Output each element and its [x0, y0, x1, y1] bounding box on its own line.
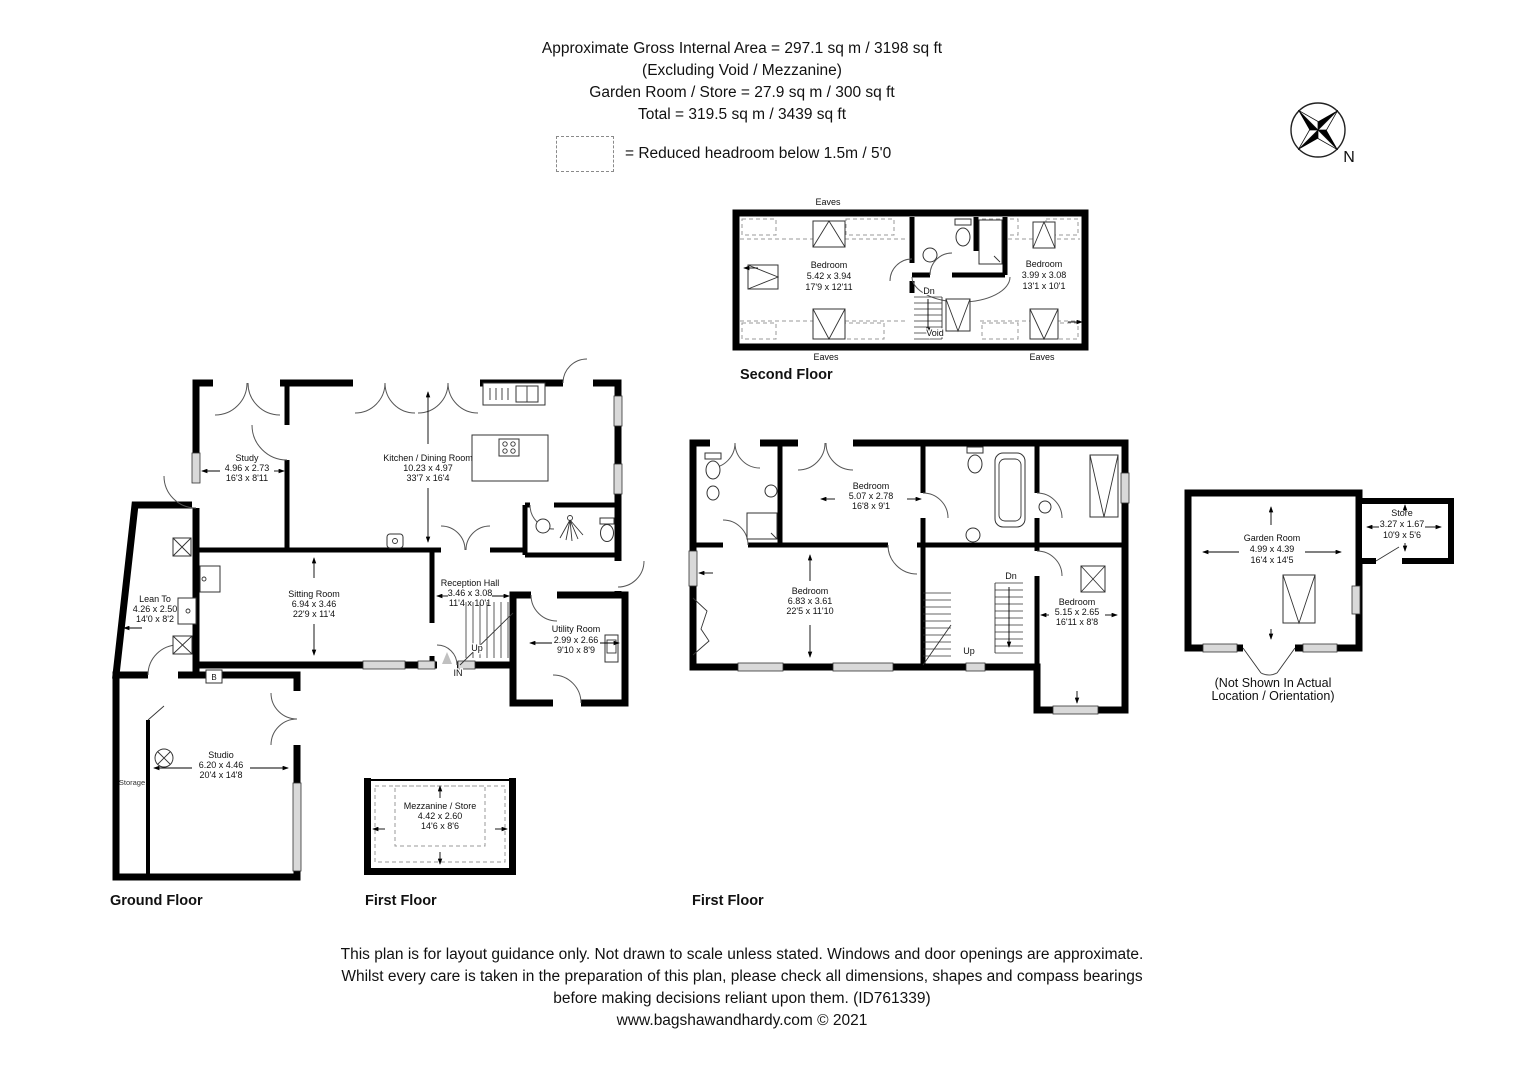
svg-text:Kitchen / Dining Room: Kitchen / Dining Room [383, 453, 473, 463]
svg-text:13'1 x 10'1: 13'1 x 10'1 [1023, 281, 1066, 291]
compass-rose-icon: N [1283, 90, 1378, 185]
room-label-sitting-room: Sitting Room 6.94 x 3.46 22'9 x 11'4 [288, 589, 340, 619]
void-label: Void [926, 328, 944, 338]
reduced-headroom-swatch [556, 136, 614, 172]
mezzanine-wall [509, 778, 516, 875]
room-label-garden-room: Garden Room 4.99 x 4.39 16'4 x 14'5 [1244, 533, 1301, 565]
svg-text:16'8 x 9'1: 16'8 x 9'1 [852, 501, 890, 511]
compass-north-label: N [1343, 149, 1355, 166]
svg-text:Bedroom: Bedroom [1026, 259, 1063, 269]
stairs-up-label: Up [963, 646, 975, 656]
room-label-bedroom-ff-left: Bedroom 6.83 x 3.61 22'5 x 11'10 [786, 586, 833, 616]
eaves-label: Eaves [1029, 352, 1055, 362]
second-floor-title: Second Floor [740, 367, 833, 383]
garden-room-outline [1188, 493, 1359, 648]
shower-icon [979, 220, 1002, 264]
summary-line-1: Approximate Gross Internal Area = 297.1 … [0, 38, 1484, 60]
svg-text:9'10 x 8'9: 9'10 x 8'9 [557, 645, 595, 655]
entrance-label: IN [454, 668, 463, 678]
summary-line-3: Garden Room / Store = 27.9 sq m / 300 sq… [0, 82, 1484, 104]
storage-label: Storage [119, 778, 145, 787]
toilet-icon [706, 461, 720, 479]
svg-text:6.83 x 3.61: 6.83 x 3.61 [788, 596, 833, 606]
svg-text:14'0 x 8'2: 14'0 x 8'2 [136, 614, 174, 624]
studio-fixtures [155, 749, 173, 767]
svg-text:Garden Room: Garden Room [1244, 533, 1301, 543]
svg-text:10'9 x 5'6: 10'9 x 5'6 [1383, 530, 1421, 540]
bed-icon [1283, 575, 1315, 623]
eaves-label: Eaves [815, 197, 841, 207]
svg-text:16'3 x 8'11: 16'3 x 8'11 [226, 473, 268, 483]
room-label-bedroom-sf-right: Bedroom 3.99 x 3.08 13'1 x 10'1 [1022, 259, 1067, 291]
mezzanine-wall [364, 868, 516, 875]
svg-text:(Not Shown In Actual: (Not Shown In Actual [1215, 676, 1332, 690]
bed-icon [813, 309, 845, 339]
svg-text:4.42 x 2.60: 4.42 x 2.60 [418, 811, 463, 821]
svg-text:Store: Store [1391, 508, 1413, 518]
sink-icon [966, 528, 980, 542]
svg-text:3.27 x 1.67: 3.27 x 1.67 [1380, 519, 1425, 529]
reduced-headroom-legend: = Reduced headroom below 1.5m / 5'0 [625, 136, 891, 172]
boiler: B [206, 670, 222, 683]
room-label-mezzanine: Mezzanine / Store 4.42 x 2.60 14'6 x 8'6 [404, 801, 477, 831]
wardrobe-icon [1081, 566, 1105, 592]
disclaimer-line-1: This plan is for layout guidance only. N… [0, 944, 1484, 966]
utility-fixtures [605, 635, 618, 662]
room-label-reception-hall: Reception Hall 3.46 x 3.08 11'4 x 10'1 [441, 578, 500, 608]
room-label-bedroom-ff-right: Bedroom 5.15 x 2.65 16'11 x 8'8 [1055, 597, 1100, 627]
summary-line-4: Total = 319.5 sq m / 3439 sq ft [0, 104, 1484, 126]
bed-icon [1030, 309, 1058, 339]
garden-room-plan: Garden Room 4.99 x 4.39 16'4 x 14'5 Stor… [1183, 487, 1468, 715]
svg-text:Sitting Room: Sitting Room [288, 589, 340, 599]
sink-icon [1039, 501, 1051, 513]
hob-icon [499, 439, 519, 456]
svg-text:16'4 x 14'5: 16'4 x 14'5 [1251, 555, 1294, 565]
room-label-bedroom-sf-left: Bedroom 5.42 x 3.94 17'9 x 12'11 [805, 260, 852, 292]
garden-room-note: (Not Shown In Actual Location / Orientat… [1212, 676, 1335, 703]
svg-text:4.26 x 2.50: 4.26 x 2.50 [133, 604, 178, 614]
svg-text:17'9 x 12'11: 17'9 x 12'11 [805, 282, 852, 292]
sink-icon [923, 248, 937, 262]
first-floor-mezzanine-title: First Floor [365, 893, 437, 909]
disclaimer: This plan is for layout guidance only. N… [0, 944, 1484, 1032]
first-floor-title: First Floor [692, 893, 764, 909]
svg-text:16'11 x 8'8: 16'11 x 8'8 [1056, 617, 1098, 627]
ground-floor-title: Ground Floor [110, 893, 203, 909]
website-copyright: www.bagshawandhardy.com © 2021 [0, 1010, 1484, 1032]
svg-text:22'5 x 11'10: 22'5 x 11'10 [786, 606, 833, 616]
svg-text:14'6 x 8'6: 14'6 x 8'6 [421, 821, 459, 831]
summary-line-2: (Excluding Void / Mezzanine) [0, 60, 1484, 82]
floorplan-page: Approximate Gross Internal Area = 297.1 … [0, 0, 1528, 1080]
area-summary: Approximate Gross Internal Area = 297.1 … [0, 38, 1484, 126]
svg-text:Bedroom: Bedroom [792, 586, 829, 596]
wardrobe-icon [748, 265, 778, 289]
svg-text:6.20 x 4.46: 6.20 x 4.46 [199, 760, 244, 770]
svg-text:Bedroom: Bedroom [1059, 597, 1096, 607]
stairs-down-label: Dn [1005, 571, 1017, 581]
svg-text:5.07 x 2.78: 5.07 x 2.78 [849, 491, 894, 501]
bed-icon [813, 221, 845, 247]
svg-text:6.94 x 3.46: 6.94 x 3.46 [292, 599, 337, 609]
svg-text:4.96 x 2.73: 4.96 x 2.73 [225, 463, 270, 473]
boiler-label: B [211, 673, 216, 682]
svg-text:Mezzanine / Store: Mezzanine / Store [404, 801, 477, 811]
svg-text:33'7 x 16'4: 33'7 x 16'4 [407, 473, 450, 483]
svg-text:22'9 x 11'4: 22'9 x 11'4 [293, 609, 335, 619]
sink-icon [765, 485, 777, 497]
svg-text:5.15 x 2.65: 5.15 x 2.65 [1055, 607, 1100, 617]
second-floor-plan: Eaves Eaves Eaves Dn Void Bedroom 5.42 x… [728, 193, 1100, 368]
eaves-label: Eaves [813, 352, 839, 362]
mezzanine-plan: Mezzanine / Store 4.42 x 2.60 14'6 x 8'6 [357, 772, 523, 878]
stairs-up-label: Up [471, 643, 483, 653]
svg-text:Lean To: Lean To [139, 594, 171, 604]
disclaimer-line-3: before making decisions reliant upon the… [0, 988, 1484, 1010]
toilet-icon [968, 455, 982, 473]
garden-room-doors [1243, 644, 1295, 675]
svg-text:Utility Room: Utility Room [552, 624, 601, 634]
appliance-icon [387, 534, 403, 548]
svg-text:Studio: Studio [208, 750, 234, 760]
svg-text:4.99 x 4.39: 4.99 x 4.39 [1250, 544, 1295, 554]
room-label-bedroom-ff-top: Bedroom 5.07 x 2.78 16'8 x 9'1 [849, 481, 894, 511]
mezzanine-wall [364, 778, 371, 875]
stairs-down-label: Dn [923, 286, 935, 296]
svg-text:Study: Study [235, 453, 259, 463]
disclaimer-line-2: Whilst every care is taken in the prepar… [0, 966, 1484, 988]
svg-text:3.46 x 3.08: 3.46 x 3.08 [448, 588, 493, 598]
svg-text:2.99 x 2.66: 2.99 x 2.66 [554, 635, 599, 645]
toilet-icon [601, 525, 614, 542]
svg-text:Bedroom: Bedroom [853, 481, 890, 491]
svg-text:10.23 x 4.97: 10.23 x 4.97 [403, 463, 453, 473]
toilet-icon [956, 228, 970, 246]
svg-text:11'4 x 10'1: 11'4 x 10'1 [449, 598, 491, 608]
svg-text:5.42 x 3.94: 5.42 x 3.94 [807, 271, 852, 281]
svg-text:Location / Orientation): Location / Orientation) [1212, 689, 1335, 703]
svg-text:Bedroom: Bedroom [811, 260, 848, 270]
first-floor-plan: Bedroom 5.07 x 2.78 16'8 x 9'1 Bedroom 6… [683, 433, 1130, 718]
svg-text:3.99 x 3.08: 3.99 x 3.08 [1022, 270, 1067, 280]
bidet-icon [707, 486, 719, 500]
void-opening [946, 299, 970, 331]
room-label-lean-to: Lean To 4.26 x 2.50 14'0 x 8'2 [133, 594, 178, 624]
sitting-room-fixtures [200, 566, 220, 592]
bed-icon [1033, 222, 1055, 248]
svg-text:Reception Hall: Reception Hall [441, 578, 500, 588]
bed-icon [1090, 455, 1118, 517]
svg-text:20'4 x 14'8: 20'4 x 14'8 [200, 770, 243, 780]
room-label-utility-room: Utility Room 2.99 x 2.66 9'10 x 8'9 [552, 624, 601, 655]
sink-icon [536, 519, 550, 533]
